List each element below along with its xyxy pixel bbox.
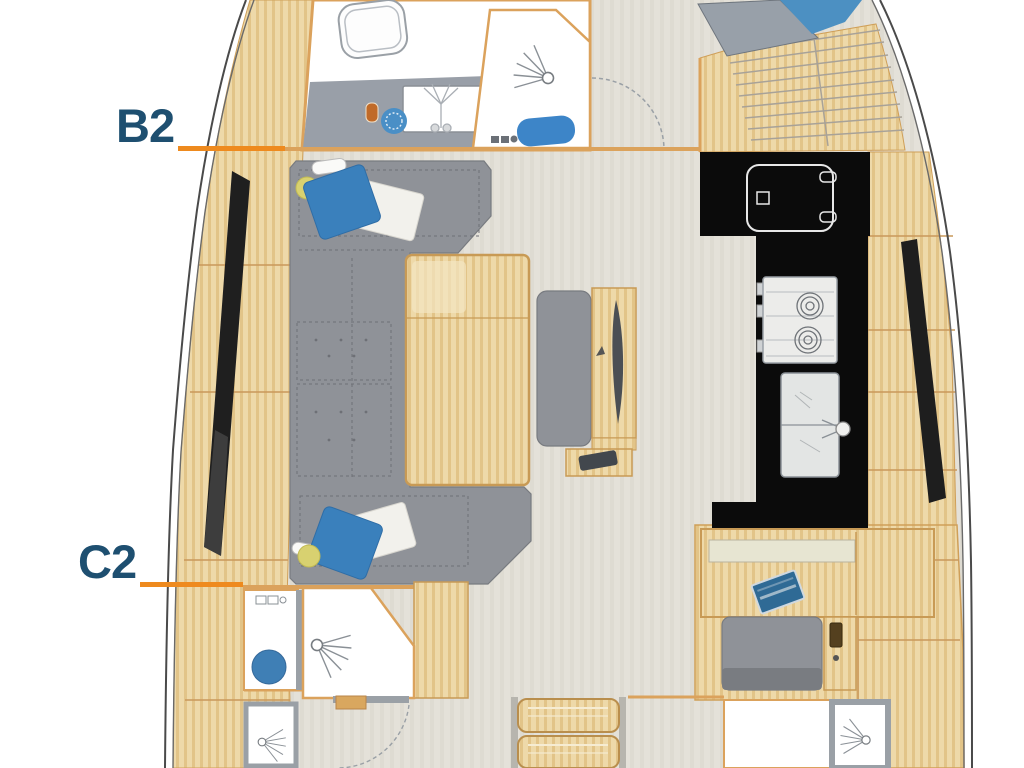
- head-floor: [724, 700, 830, 768]
- panel-handle: [830, 623, 842, 647]
- cabin-label-c2: C2: [78, 538, 136, 585]
- forward-head-room: [302, 0, 590, 150]
- soap-dispenser: [366, 103, 378, 122]
- storage-box: [566, 449, 632, 476]
- b2-leader-line: [178, 146, 285, 151]
- nav-seat-edge: [722, 668, 822, 690]
- cushion-round: [298, 545, 320, 567]
- bench-side-cabinet: [592, 288, 636, 450]
- faucet-knob: [836, 422, 850, 436]
- shower-stall: [246, 704, 296, 766]
- bath-mat: [516, 115, 576, 148]
- c2-leader-line: [140, 582, 243, 587]
- galley-sink: [781, 373, 850, 477]
- aft-starboard-head: [724, 700, 888, 768]
- center-bench: [537, 291, 591, 446]
- forward-stairs: [511, 697, 626, 768]
- nav-shelf: [709, 540, 855, 562]
- toilet: [337, 0, 409, 60]
- vent-marks: [491, 136, 518, 144]
- door-handle: [336, 696, 366, 709]
- salon-table: [406, 255, 529, 485]
- shower-stall: [832, 702, 888, 768]
- cabin-label-b2: B2: [116, 102, 174, 149]
- galley-counter-step: [712, 502, 758, 528]
- toilet-bowl: [252, 650, 286, 684]
- galley-stove: [757, 277, 837, 363]
- floor-plan-canvas: B2 C2: [0, 0, 1024, 768]
- drain-icon: [381, 108, 407, 134]
- vanity-sink: [403, 86, 481, 132]
- c2-wood-wall: [414, 582, 468, 698]
